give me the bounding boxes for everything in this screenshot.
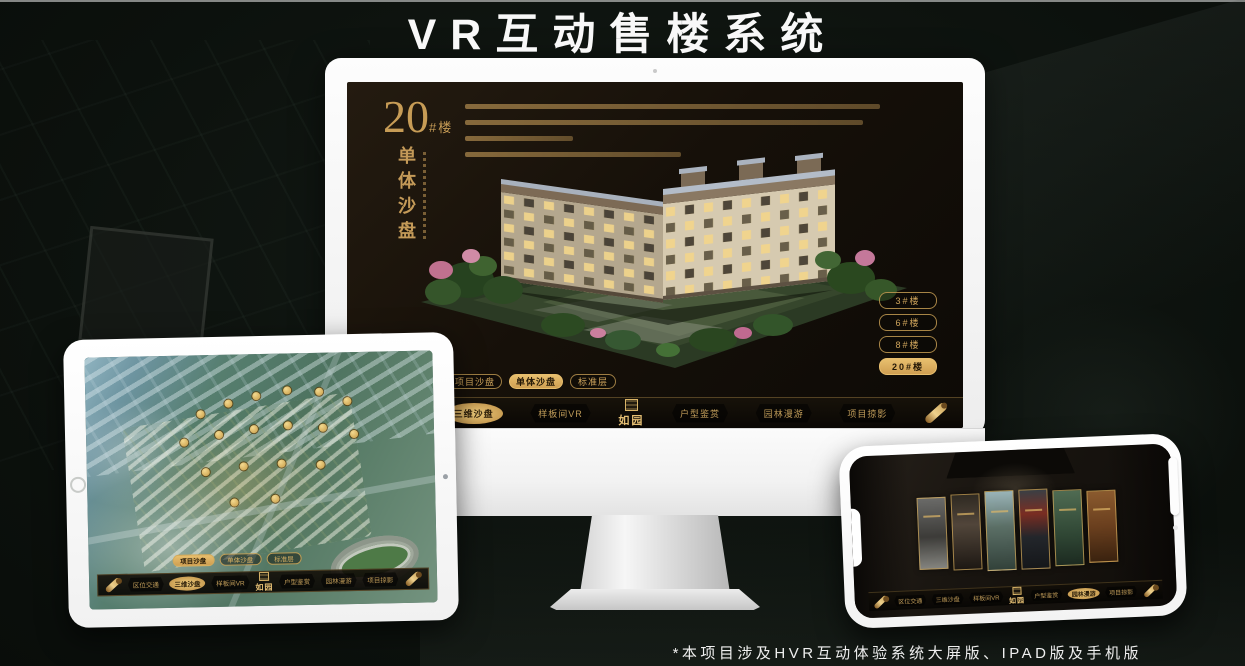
building-marker[interactable] <box>215 430 223 438</box>
scroll-icon[interactable] <box>924 401 949 424</box>
gallery-panel-garden[interactable] <box>1052 489 1084 566</box>
nav-item-garden-roam[interactable]: 园林漫游 <box>321 573 357 588</box>
nav-item-garden-roam[interactable]: 园林漫游 <box>756 404 812 423</box>
monitor-camera-dot <box>653 69 657 73</box>
building-marker[interactable] <box>343 397 351 405</box>
seal-icon <box>259 571 269 580</box>
gallery-panel-building[interactable] <box>984 490 1016 571</box>
building-marker[interactable] <box>319 423 327 431</box>
scroll-icon[interactable] <box>404 570 421 587</box>
background-plaque <box>78 226 213 354</box>
nav-item-project-gallery[interactable]: 项目掠影 <box>1105 585 1137 597</box>
monitor-stand-neck <box>580 515 730 593</box>
phone-side-bezel-pill <box>1168 457 1179 515</box>
page-title: VR互动售楼系统 <box>0 0 1245 62</box>
brand-logo-text: 如园 <box>1009 595 1025 606</box>
nav-item-modelroom-vr[interactable]: 样板间VR <box>969 591 1004 603</box>
floor-button-20-selected[interactable]: 20#楼 <box>879 358 937 375</box>
scroll-icon[interactable] <box>873 594 888 609</box>
gallery-panel-lobby[interactable] <box>950 493 982 570</box>
nav-item-floorplan-gallery[interactable]: 户型鉴赏 <box>1030 588 1062 600</box>
gallery-panel-facade[interactable] <box>1018 489 1050 570</box>
nav-item-garden-roam[interactable]: 园林漫游 <box>1067 587 1099 599</box>
tab-single-building-sandtable[interactable]: 单体沙盘 <box>219 553 261 566</box>
haze-overlay <box>84 401 203 510</box>
seal-icon <box>625 399 638 411</box>
brand-logo: 如园 <box>255 571 273 592</box>
tab-standard-floor[interactable]: 标准层 <box>266 552 302 565</box>
building-number: 20 <box>383 91 429 142</box>
paragraph-line <box>465 104 880 109</box>
ipad-screen: 项目沙盘 单体沙盘 标准层 区位交通 三维沙盘 样板间VR 如园 户型鉴赏 园林… <box>84 350 437 609</box>
nav-item-modelroom-vr[interactable]: 样板间VR <box>530 404 591 423</box>
floor-selector: 3#楼 6#楼 8#楼 20#楼 <box>879 292 937 375</box>
tab-project-sandtable[interactable]: 项目沙盘 <box>448 374 502 389</box>
gallery-panel-study[interactable] <box>1086 490 1118 563</box>
tab-single-building-sandtable[interactable]: 单体沙盘 <box>509 374 563 389</box>
nav-item-modelroom-vr[interactable]: 样板间VR <box>211 575 250 590</box>
monitor-stand-base <box>550 589 760 610</box>
nav-item-location-transport[interactable]: 区位交通 <box>128 577 164 592</box>
brand-logo: 如园 <box>618 399 644 428</box>
nav-item-3d-sandtable[interactable]: 三维沙盘 <box>931 593 963 605</box>
tab-project-sandtable[interactable]: 项目沙盘 <box>172 554 214 567</box>
ipad-camera-dot <box>443 474 448 479</box>
nav-item-3d-sandtable[interactable]: 三维沙盘 <box>169 576 205 591</box>
stage: VR互动售楼系统 20#楼 单体沙盘 <box>0 0 1245 666</box>
nav-item-location-transport[interactable]: 区位交通 <box>894 594 926 606</box>
building-3d-render[interactable] <box>413 140 913 390</box>
floor-button-3[interactable]: 3#楼 <box>879 292 937 309</box>
gallery-panel-interior[interactable] <box>917 497 949 570</box>
seal-icon <box>1012 586 1021 594</box>
scroll-icon[interactable] <box>1143 583 1158 598</box>
ipad-device: 项目沙盘 单体沙盘 标准层 区位交通 三维沙盘 样板间VR 如园 户型鉴赏 园林… <box>63 332 459 628</box>
ipad-home-button[interactable] <box>70 477 86 493</box>
scroll-icon[interactable] <box>105 577 122 594</box>
gallery-panels <box>916 486 1118 574</box>
nav-item-project-gallery[interactable]: 项目掠影 <box>362 572 398 587</box>
tab-standard-floor[interactable]: 标准层 <box>570 374 616 389</box>
floor-button-6[interactable]: 6#楼 <box>879 314 937 331</box>
nav-item-floorplan-gallery[interactable]: 户型鉴赏 <box>279 574 315 589</box>
building-marker[interactable] <box>252 392 260 400</box>
phone-camera-dot <box>1173 525 1178 530</box>
brand-logo-text: 如园 <box>618 412 644 428</box>
nav-item-project-gallery[interactable]: 项目掠影 <box>839 404 895 423</box>
footnote-text: *本项目涉及HVR互动体验系统大屏版、IPAD版及手机版 <box>673 642 1142 663</box>
building-marker[interactable] <box>230 498 238 506</box>
floor-button-8[interactable]: 8#楼 <box>879 336 937 353</box>
brand-logo-text: 如园 <box>255 581 273 592</box>
nav-item-floorplan-gallery[interactable]: 户型鉴赏 <box>672 404 728 423</box>
brand-logo: 如园 <box>1008 586 1025 606</box>
phone-screen: 区位交通 三维沙盘 样板间VR 如园 户型鉴赏 园林漫游 项目掠影 <box>849 443 1178 618</box>
paragraph-line <box>465 120 863 125</box>
building-number-unit: #楼 <box>429 120 453 135</box>
phone-device: 区位交通 三维沙盘 样板间VR 如园 户型鉴赏 园林漫游 项目掠影 <box>838 433 1187 629</box>
building-number-headline: 20#楼 <box>383 94 453 140</box>
view-mode-tabs: 项目沙盘 单体沙盘 标准层 <box>448 374 616 389</box>
building-marker[interactable] <box>249 425 257 433</box>
building-marker[interactable] <box>315 388 323 396</box>
